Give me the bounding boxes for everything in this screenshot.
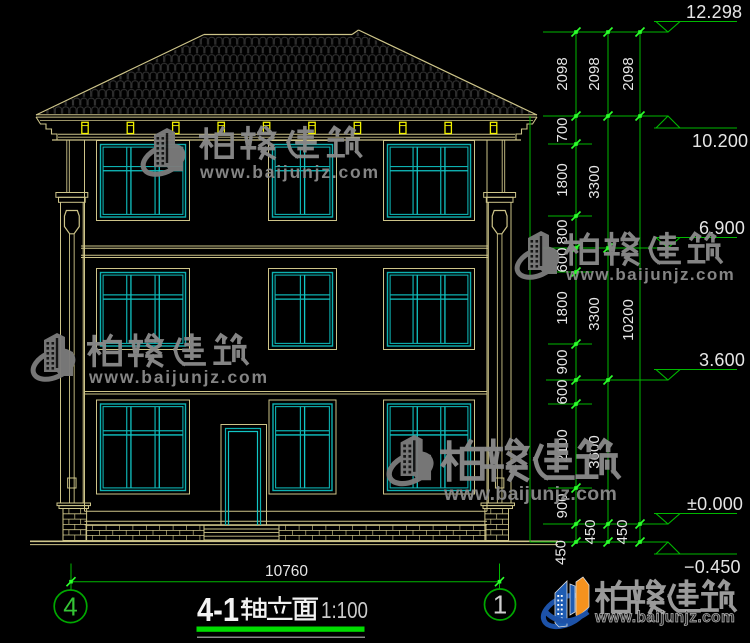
svg-text:www.baijunjz.com: www.baijunjz.com	[443, 483, 617, 505]
svg-text:10.200: 10.200	[692, 131, 748, 151]
svg-text:3.600: 3.600	[699, 350, 745, 370]
svg-text:450: 450	[614, 519, 631, 544]
svg-text:1: 1	[493, 590, 507, 620]
svg-text:4: 4	[63, 592, 77, 622]
svg-text:www.baijunjz.com: www.baijunjz.com	[199, 162, 380, 182]
svg-text:2098: 2098	[620, 57, 637, 90]
svg-text:www.baijunjz.com: www.baijunjz.com	[594, 609, 735, 626]
svg-text:www.baijunjz.com: www.baijunjz.com	[565, 265, 735, 284]
svg-text:www.baijunjz.com: www.baijunjz.com	[88, 367, 269, 387]
svg-text:1:100: 1:100	[321, 597, 368, 623]
svg-text:450: 450	[582, 519, 599, 544]
svg-text:10200: 10200	[620, 299, 637, 341]
svg-text:450: 450	[552, 540, 569, 565]
svg-text:12.298: 12.298	[686, 2, 742, 22]
svg-text:1800: 1800	[554, 163, 571, 196]
svg-text:10760: 10760	[265, 563, 308, 580]
svg-text:6.900: 6.900	[699, 218, 745, 238]
svg-text:600: 600	[554, 379, 571, 404]
svg-text:−0.450: −0.450	[684, 557, 741, 577]
svg-text:3300: 3300	[586, 297, 603, 330]
svg-text:±0.000: ±0.000	[687, 494, 743, 514]
svg-text:900: 900	[554, 349, 571, 374]
svg-text:2098: 2098	[586, 57, 603, 90]
svg-text:4-1: 4-1	[197, 591, 239, 628]
svg-text:1800: 1800	[554, 291, 571, 324]
svg-text:3300: 3300	[586, 165, 603, 198]
svg-text:2098: 2098	[554, 57, 571, 90]
svg-text:700: 700	[554, 117, 571, 142]
